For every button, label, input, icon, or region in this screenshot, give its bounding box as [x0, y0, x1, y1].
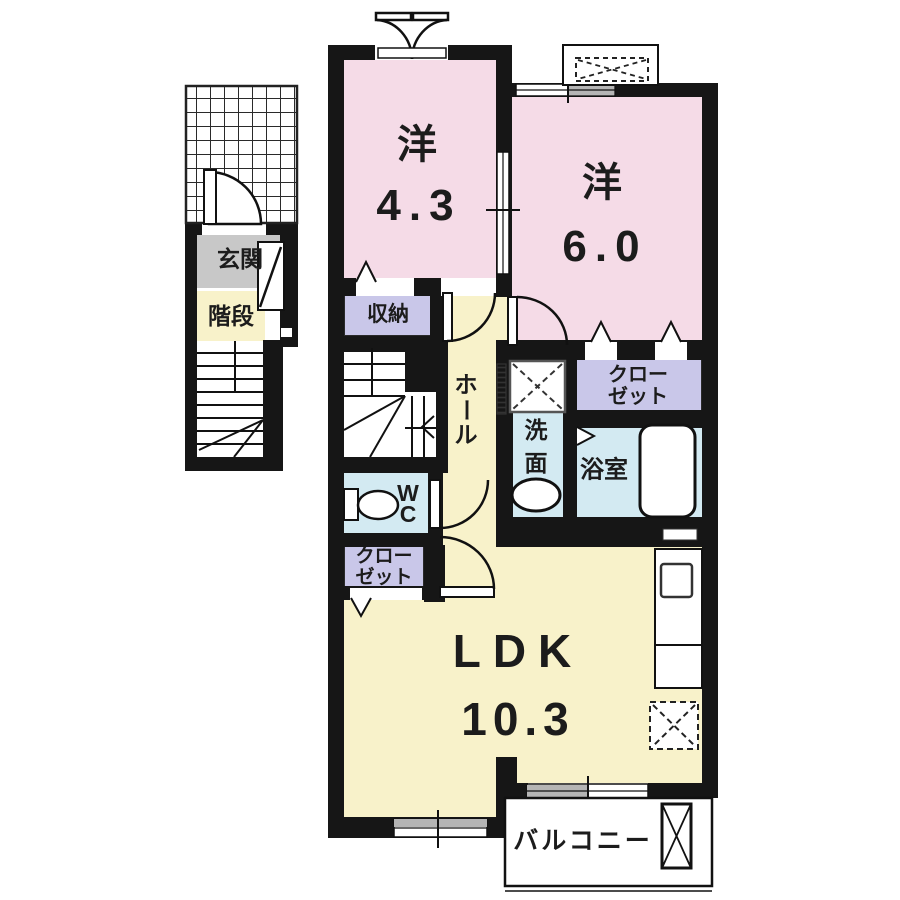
- kitchen-counter: [655, 549, 702, 688]
- stairs-lines: [197, 341, 436, 457]
- opening-closet-upper-2: [655, 342, 687, 360]
- wc-label: WC: [397, 483, 419, 525]
- wall: [263, 340, 283, 471]
- bath-label: 浴室: [580, 457, 628, 482]
- double-door-leaf-right: [413, 13, 448, 20]
- kitchen-hatch-window: [663, 529, 697, 540]
- room-west60-floor: [512, 95, 702, 342]
- room-west60-name: 洋: [582, 162, 622, 204]
- wall: [185, 222, 197, 471]
- bathtub: [640, 425, 695, 517]
- wall: [328, 45, 344, 838]
- door-leaf-west43: [443, 293, 452, 341]
- door-leaf-wc: [430, 480, 440, 528]
- washing-machine-space: [510, 361, 565, 412]
- wall: [563, 410, 718, 428]
- storage-label: 収納: [367, 304, 409, 326]
- toilet: [344, 489, 398, 520]
- wall: [328, 533, 443, 547]
- balcony-label: バルコニー: [513, 828, 653, 854]
- opening-closet-upper-1: [585, 342, 617, 360]
- door-leaf-ldk: [440, 587, 494, 597]
- entry-door-leaf: [204, 170, 216, 224]
- ac-unit-space-top: [563, 45, 658, 85]
- floorplan-drawing: [0, 0, 900, 900]
- room-west43-size: 4.3: [376, 183, 461, 229]
- washroom-label: 洗面: [525, 414, 548, 480]
- hall-label: ホール: [455, 373, 478, 448]
- room-west43-floor: [344, 58, 496, 282]
- double-door: [376, 13, 448, 59]
- floorplan-canvas: 玄関 階段 収納 洋 4.3 洋 6.0 ホール 洗面 浴室 クローゼット クロ…: [0, 0, 900, 900]
- wall: [702, 83, 718, 798]
- balcony-ac-unit: [662, 804, 691, 868]
- ldk-size: 10.3: [461, 695, 575, 743]
- wall: [436, 336, 448, 471]
- entrance-label: 玄関: [217, 247, 263, 271]
- room-west43-name: 洋: [397, 124, 437, 166]
- porch-grid: [186, 86, 297, 224]
- closet-upper-label: クローゼット: [608, 364, 668, 408]
- door-leaf-west60: [508, 297, 517, 345]
- wall: [405, 346, 436, 392]
- washbasin: [512, 479, 560, 511]
- kitchen-sink: [661, 564, 692, 597]
- room-west60-size: 6.0: [562, 224, 647, 270]
- exterior-staircase: [197, 341, 263, 457]
- refrigerator-space: [650, 702, 698, 749]
- stairs-label: 階段: [208, 304, 254, 328]
- sliding-door-washroom: [497, 364, 506, 414]
- ldk-name: LDK: [453, 627, 584, 675]
- closet-lower-label: クローゼット: [355, 546, 412, 588]
- double-door-leaf-left: [376, 13, 411, 20]
- wall: [185, 457, 283, 471]
- double-door-sill: [378, 48, 446, 58]
- stair-notch: [281, 328, 292, 337]
